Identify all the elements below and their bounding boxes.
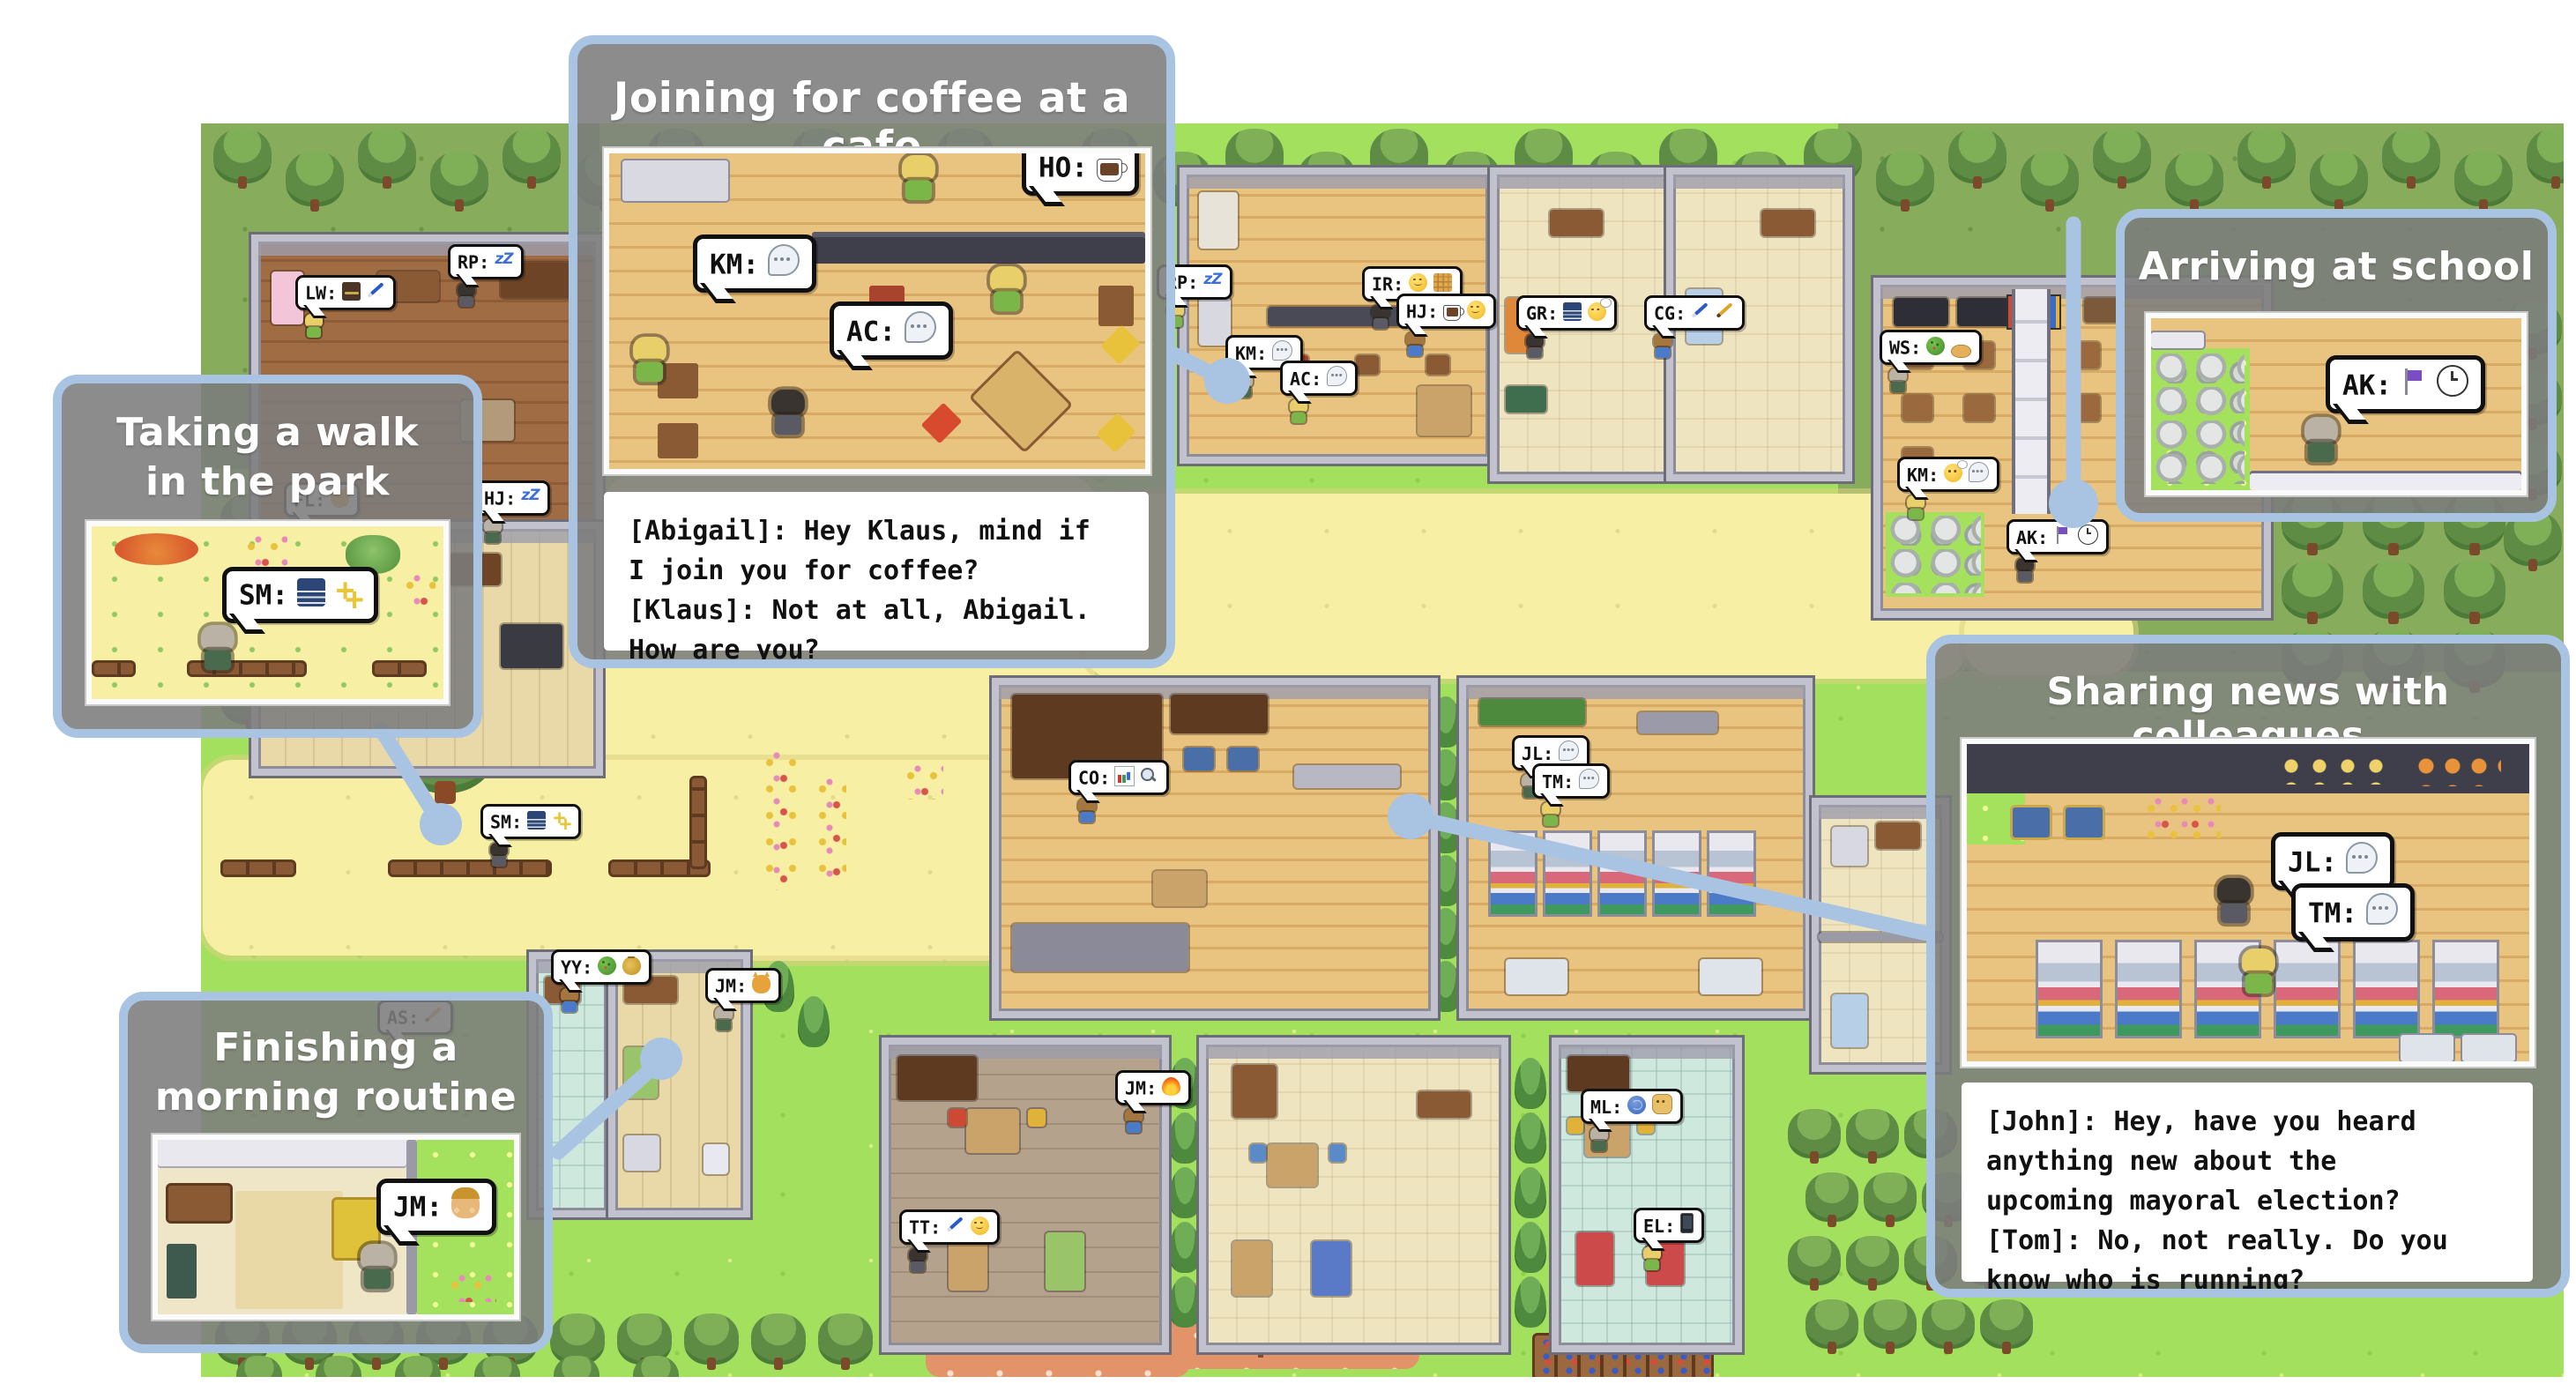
zzz-icon — [521, 487, 540, 506]
speech-icon — [1272, 340, 1292, 361]
yarn-icon — [1627, 1096, 1646, 1114]
agent-bubble-tm: TM: — [2291, 883, 2415, 941]
dialogue-line: [Klaus]: Not at all, Abigail. — [629, 591, 1124, 630]
dialogue-line: [Abigail]: Hey Klaus, mind if — [629, 511, 1124, 551]
tree — [213, 129, 272, 183]
tree — [1846, 1236, 1899, 1285]
agent-bubble-jl: JL: — [2271, 832, 2394, 890]
furniture — [1418, 1091, 1470, 1118]
tree — [1864, 1299, 1917, 1349]
agent-initials: YY: — [561, 957, 592, 978]
mag-icon — [1140, 767, 1158, 785]
callout-park-title-line1: Taking a walk — [62, 408, 473, 458]
cypress-tree — [1515, 1167, 1546, 1218]
agent-bubble-ac: AC: — [1280, 361, 1358, 396]
agent-bubble-tm: TM: — [1532, 763, 1610, 799]
pen-icon — [946, 1217, 964, 1235]
park-fence-2 — [388, 859, 552, 877]
furniture — [1046, 1232, 1084, 1291]
tree — [503, 129, 561, 183]
cafe-chair-red — [921, 403, 963, 444]
furniture — [1268, 1144, 1317, 1187]
tree — [2237, 129, 2296, 183]
agent-bubble-sm: SM: — [222, 567, 378, 623]
cafe-cabinet — [622, 160, 728, 201]
agent-initials: IR: — [1372, 274, 1403, 295]
speech-icon — [768, 244, 800, 276]
cafe-character — [900, 155, 937, 202]
furniture — [1184, 748, 1214, 770]
cafe-character — [770, 390, 807, 436]
agent-bubble-co: CO: — [1068, 760, 1169, 795]
book-icon — [297, 578, 325, 606]
cafe-chairs-left2 — [658, 423, 698, 458]
cafe-counter — [812, 237, 1145, 264]
clock-icon — [2437, 365, 2468, 397]
park-fence-1 — [220, 859, 296, 877]
furniture — [1426, 355, 1449, 375]
furniture — [966, 1109, 1019, 1153]
park-character — [199, 625, 236, 672]
waffle-icon — [1433, 273, 1452, 292]
tree — [2382, 129, 2440, 183]
agent-bubble-ho: HO: — [1022, 148, 1139, 196]
store-fridge2 — [2462, 1035, 2515, 1061]
school-yard — [1886, 512, 1984, 597]
callout-cafe: Joining for coffee at a cafe KM:AC:HO: [… — [569, 35, 1175, 668]
callout-news-inset: JL:TM: — [1962, 739, 2535, 1067]
furniture — [1700, 959, 1761, 994]
furniture — [501, 624, 562, 668]
notebook-icon — [342, 282, 361, 301]
cafe-character — [988, 266, 1025, 313]
agent-initials: ML: — [1590, 1097, 1622, 1118]
dialogue-line: How are you? — [629, 630, 1124, 668]
fire-icon — [1162, 1077, 1180, 1096]
agent-bubble-el: EL: — [1634, 1208, 1704, 1243]
callout-park-inset: SM: — [86, 521, 449, 704]
phone-icon — [1680, 1213, 1694, 1233]
agent-initials: LW: — [305, 283, 337, 304]
salad-icon — [598, 956, 616, 975]
agent-initials: AK: — [2016, 527, 2048, 548]
routine-dresser — [168, 1186, 230, 1221]
furniture — [1550, 210, 1603, 236]
callout-routine-title: Finishing a morning routine — [128, 1023, 544, 1122]
agent-bubble-km: KM: — [1897, 457, 1999, 492]
school-inset-rocks — [2155, 353, 2245, 484]
callout-news-dialogue: [John]: Hey, have you heardanything new … — [1962, 1083, 2533, 1282]
agent-bubble-jm: JM: — [705, 968, 781, 1003]
callout-park-title-line2: in the park — [62, 458, 473, 507]
tree — [1846, 1109, 1899, 1158]
agent-initials: KM: — [1907, 465, 1939, 486]
agent-initials: JL: — [2288, 847, 2337, 879]
furniture — [1894, 298, 1948, 326]
agent-initials: TT: — [909, 1217, 941, 1239]
tree — [2282, 561, 2343, 619]
connector-endpoint — [1204, 358, 1250, 404]
cypress-tree — [1169, 1112, 1201, 1164]
furniture — [1902, 395, 1932, 421]
cafe-chair-yellow — [1100, 324, 1140, 364]
bread-icon — [1951, 345, 1971, 358]
agent-initials: GR: — [1526, 303, 1558, 324]
tree — [751, 1313, 806, 1365]
dialogue-line: [John]: Hey, have you heard — [1986, 1102, 2508, 1142]
agent-initials: JM: — [393, 1192, 443, 1224]
speech-icon — [1969, 462, 1989, 482]
callout-routine: Finishing a morning routine JM: — [119, 992, 553, 1353]
furniture — [1506, 959, 1567, 994]
speech-icon — [1559, 740, 1579, 761]
furniture — [1964, 395, 1994, 421]
cypress-tree — [1169, 1167, 1201, 1218]
furniture — [1567, 1118, 1583, 1134]
callout-news: Sharing news with colleagues JL:TM: [Joh… — [1926, 635, 2570, 1298]
furniture — [1876, 822, 1920, 849]
tree — [430, 152, 488, 206]
furniture — [1171, 695, 1268, 733]
dialogue-line: I join you for coffee? — [629, 551, 1124, 591]
agent-initials: JM: — [715, 976, 747, 997]
house-ml-el — [1552, 1038, 1742, 1352]
agent-bubble-ak: AK: — [2326, 355, 2485, 413]
furniture — [1232, 1241, 1271, 1296]
agent-initials: WS: — [1889, 338, 1921, 359]
cypress-tree — [1515, 1058, 1546, 1109]
cypress-tree — [1515, 1222, 1546, 1273]
agent-initials: CO: — [1078, 768, 1110, 789]
tree — [1788, 1236, 1841, 1285]
think-icon — [1588, 302, 1606, 321]
coffee-icon — [1443, 305, 1461, 321]
dialogue-line: know who is running? — [1986, 1261, 2508, 1298]
speech-icon — [2366, 893, 2398, 925]
park-flowers-3 — [899, 763, 943, 800]
connector-endpoint — [2049, 479, 2098, 528]
flag-icon — [2401, 368, 2429, 397]
agent-bubble-lw: LW: — [295, 275, 396, 310]
routine-wallband — [158, 1140, 406, 1166]
store-frame2 — [2066, 807, 2103, 837]
connector-endpoint — [1388, 793, 1433, 839]
speech-icon — [1327, 366, 1347, 386]
park-flowers-2 — [811, 776, 846, 890]
sparkle-icon — [552, 811, 570, 830]
speech-icon — [2346, 842, 2378, 874]
agent-initials: AK: — [2342, 370, 2392, 402]
cafe-sidetable — [1098, 286, 1134, 326]
furniture — [1832, 994, 1867, 1047]
callout-cafe-dialogue: [Abigail]: Hey Klaus, mind ifI join you … — [604, 492, 1149, 651]
school-inset-tile — [2151, 332, 2204, 348]
book-icon — [1563, 302, 1582, 321]
furniture — [624, 1135, 659, 1171]
routine-flowers — [443, 1272, 496, 1302]
store-shelf — [2036, 940, 2103, 1038]
connector-endpoint — [640, 1038, 682, 1080]
agent-initials: HO: — [1039, 153, 1088, 184]
furniture — [1576, 1232, 1613, 1285]
store-shelf — [2432, 940, 2499, 1038]
furniture — [1506, 386, 1546, 413]
tree — [2527, 129, 2564, 183]
furniture — [949, 1109, 966, 1127]
library — [992, 678, 1438, 1018]
tree — [2363, 561, 2424, 619]
zzz-icon — [1203, 272, 1222, 290]
callout-routine-title-line2: morning routine — [128, 1073, 544, 1122]
cypress-tree — [1169, 1222, 1201, 1273]
furniture — [1329, 1144, 1345, 1162]
chart-icon — [1115, 767, 1134, 785]
store-garland — [2277, 755, 2392, 785]
tree — [1864, 1172, 1917, 1222]
agent-initials: HJ: — [484, 488, 516, 510]
tree — [286, 152, 344, 206]
tree — [684, 1313, 739, 1365]
agent-initials: RP: — [458, 252, 489, 273]
pen-icon — [367, 282, 385, 301]
dialogue-line: upcoming mayoral election? — [1986, 1181, 2508, 1221]
agent-initials: CG: — [1654, 303, 1686, 324]
smile-icon — [1409, 273, 1427, 292]
tree — [358, 129, 416, 183]
furniture — [1228, 748, 1258, 770]
agent-bubble-rp: RP: — [448, 244, 524, 279]
agent-initials: TM: — [1542, 771, 1574, 792]
think-icon — [1944, 464, 1962, 482]
dialogue-line: anything new about the — [1986, 1142, 2508, 1181]
smile-icon — [1467, 301, 1485, 319]
store-fridge — [2401, 1035, 2453, 1061]
sparkle-icon — [333, 578, 361, 606]
tree — [1980, 1299, 2033, 1349]
tree — [1805, 1172, 1858, 1222]
store-character — [2215, 878, 2252, 925]
store-shelf — [2115, 940, 2182, 1038]
zzz-icon — [495, 251, 513, 270]
agent-initials: AC: — [846, 316, 896, 348]
cypress-tree — [1515, 1276, 1546, 1328]
callout-school-title: Arriving at school — [2125, 244, 2548, 289]
furniture — [1761, 210, 1814, 236]
clock-icon — [2078, 525, 2098, 545]
tree — [1805, 1299, 1858, 1349]
furniture — [1479, 699, 1585, 725]
tree — [2454, 152, 2513, 206]
smile-icon — [971, 1217, 989, 1235]
agent-bubble-gr: GR: — [1516, 295, 1617, 331]
furniture — [1567, 1056, 1629, 1091]
agent-initials: SM: — [490, 812, 522, 833]
pen-icon — [1691, 302, 1709, 321]
school-hallway — [2012, 289, 2051, 514]
furniture — [1250, 1144, 1266, 1162]
agent-initials: EL: — [1643, 1216, 1675, 1237]
callout-park-title: Taking a walk in the park — [62, 408, 473, 507]
callout-routine-title-line1: Finishing a — [128, 1023, 544, 1073]
tree — [2021, 152, 2079, 206]
furniture — [1356, 355, 1379, 375]
park-inset-fence3 — [372, 660, 427, 677]
furniture — [1028, 1109, 1046, 1127]
furniture — [1232, 1065, 1277, 1118]
park-path-lower — [203, 760, 1095, 956]
park-flowerbed — [115, 533, 198, 565]
store-lamps — [2413, 753, 2501, 786]
callout-routine-inset: JM: — [153, 1135, 519, 1320]
callout-cafe-inset: KM:AC:HO: — [604, 148, 1150, 474]
tree — [1788, 1109, 1841, 1158]
agent-bubble-jm: JM: — [1115, 1070, 1191, 1105]
park-flowers-1 — [758, 749, 797, 890]
furniture — [1312, 1241, 1351, 1296]
agent-bubble-tt: TT: — [899, 1209, 1000, 1245]
routine-closet — [167, 1244, 197, 1298]
connector-endpoint — [420, 803, 462, 845]
agent-bubble-jm: JM: — [376, 1179, 496, 1235]
furniture — [897, 1056, 977, 1100]
speech-icon — [905, 311, 936, 343]
store-frame — [2013, 807, 2050, 837]
agent-bubble-hj: HJ: — [1396, 294, 1496, 329]
routine-character — [359, 1244, 396, 1291]
agent-initials: HJ: — [1406, 301, 1438, 323]
agent-initials: SM: — [239, 580, 288, 612]
agent-bubble-cg: CG: — [1644, 295, 1745, 331]
park-fence-4 — [689, 776, 707, 869]
massage-icon — [451, 1190, 480, 1218]
callout-park: Taking a walk in the park SM: — [53, 375, 482, 738]
park-inset-flowers2 — [398, 572, 436, 607]
agent-bubble-yy: YY: — [551, 949, 651, 985]
callout-school: Arriving at school AK: — [2116, 209, 2557, 522]
furniture — [704, 1144, 728, 1174]
furniture — [1199, 192, 1238, 249]
furniture — [1294, 765, 1400, 788]
store-shelf — [2274, 940, 2341, 1038]
furniture — [1153, 871, 1206, 906]
agent-initials: JM: — [1125, 1078, 1157, 1099]
house-jm2 — [1199, 1038, 1508, 1352]
tree — [1948, 129, 2006, 183]
figure-stage: LW:RP:FL:HJ:RP:IR:HJ:KM:AC:GR:CG:WS:KM:A… — [0, 0, 2576, 1384]
coffee-icon — [1097, 159, 1122, 182]
money-icon — [622, 956, 641, 975]
agent-bubble-ml: ML: — [1581, 1089, 1683, 1124]
tree — [2165, 152, 2223, 206]
agent-bubble-ak: AK: — [2006, 519, 2109, 554]
flag-icon — [2053, 526, 2072, 545]
store-shelf — [2353, 940, 2420, 1038]
furniture — [1957, 298, 2012, 326]
store-flowers — [2140, 795, 2221, 841]
agent-bubble-sm: SM: — [480, 804, 581, 839]
furniture — [1418, 386, 1470, 435]
furniture — [1012, 924, 1188, 971]
tree — [2093, 129, 2151, 183]
cat-icon — [752, 975, 771, 993]
routine-floor — [235, 1191, 343, 1309]
school-character — [2303, 417, 2340, 464]
park-inset-fence1 — [92, 660, 136, 677]
cypress-tree — [798, 996, 830, 1047]
cypress-tree — [1515, 1112, 1546, 1164]
tree — [1876, 152, 1934, 206]
tree — [2444, 561, 2505, 619]
furniture — [1832, 827, 1867, 866]
agent-bubble-ac: AC: — [830, 301, 953, 360]
agent-initials: KM: — [710, 249, 759, 281]
furniture — [1638, 712, 1717, 733]
cafe-table — [972, 353, 1069, 450]
store-character2 — [2240, 949, 2277, 995]
tree — [2310, 152, 2368, 206]
agent-bubble-hj: HJ: — [474, 480, 550, 516]
agent-initials: JL: — [1522, 743, 1553, 764]
pencil-icon — [1716, 302, 1734, 321]
school-inset-walkway — [2250, 473, 2521, 490]
agent-initials: TM: — [2308, 898, 2357, 930]
agent-bubble-km: KM: — [693, 234, 816, 293]
callout-school-inset: AK: — [2146, 313, 2527, 495]
cafe-chair-yellow2 — [1096, 413, 1135, 452]
connector-line — [2066, 217, 2081, 484]
cafe-character — [631, 337, 668, 383]
supermarket — [1459, 678, 1813, 1018]
salad-icon — [1926, 337, 1945, 355]
school-yard-rocks — [1889, 516, 1981, 593]
mask-icon — [1652, 1094, 1672, 1114]
market-shelf — [1707, 830, 1756, 917]
agent-bubble-ws: WS: — [1880, 330, 1982, 365]
agent-initials: AC: — [1290, 368, 1322, 390]
tree — [818, 1313, 873, 1365]
book-icon — [527, 811, 546, 830]
school-inset-grass — [2151, 348, 2250, 490]
tree — [1922, 1299, 1975, 1349]
central-path — [1084, 494, 1966, 679]
dialogue-line: [Tom]: No, not really. Do you — [1986, 1221, 2508, 1261]
speech-icon — [1579, 769, 1599, 789]
